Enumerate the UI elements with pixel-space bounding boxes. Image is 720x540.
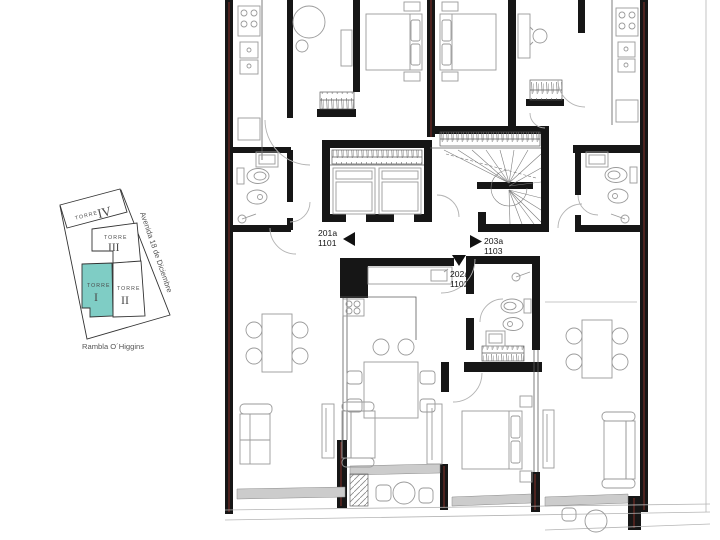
bar-stool-icon xyxy=(373,339,389,355)
nightstand-icon xyxy=(520,396,532,407)
bedroom-2 xyxy=(440,2,496,81)
bath-202-door-arc xyxy=(480,299,503,322)
unit-203a-arrow-right-icon xyxy=(470,235,482,248)
chair-icon xyxy=(246,348,262,364)
unit-label-201a: 201a 1101 xyxy=(318,228,355,248)
svg-text:II: II xyxy=(121,293,129,307)
shower-icon xyxy=(238,214,256,223)
svg-text:202a: 202a xyxy=(450,269,469,279)
bathroom-left xyxy=(237,152,278,223)
elevator-icon xyxy=(379,168,421,214)
planter-icon xyxy=(350,474,368,506)
desk-chair-icon xyxy=(533,29,547,43)
bed-icon xyxy=(440,14,496,70)
unit203-hall-wall xyxy=(578,0,585,33)
bed-icon xyxy=(366,14,422,70)
dining-unit201 xyxy=(246,314,308,372)
nightstand-icon xyxy=(404,72,420,81)
cabinet-icon xyxy=(238,118,260,140)
svg-text:TORRE: TORRE xyxy=(117,286,141,292)
toilet-icon xyxy=(237,168,269,184)
svg-text:1103: 1103 xyxy=(484,246,503,256)
balcony-table-icon xyxy=(585,510,607,532)
floor-plan-drawing: TORRE IV TORRE III TORRE I TORRE II Aven… xyxy=(0,0,720,540)
floor-plan-page: TORRE IV TORRE III TORRE I TORRE II Aven… xyxy=(0,0,720,540)
desk-icon xyxy=(518,14,530,58)
unit201-bedroom-wall xyxy=(353,0,360,92)
round-table-icon xyxy=(293,6,325,38)
elevator-icon xyxy=(333,168,375,214)
chair-icon xyxy=(292,348,308,364)
studio-unit201 xyxy=(293,6,352,66)
svg-text:TORRE: TORRE xyxy=(104,235,128,241)
cabinet-icon xyxy=(616,100,638,122)
svg-text:1101: 1101 xyxy=(318,238,337,248)
svg-text:201a: 201a xyxy=(318,228,337,238)
closets xyxy=(320,80,562,361)
walls xyxy=(225,0,648,530)
kitchen-unit203 xyxy=(616,8,638,122)
shower-icon xyxy=(512,272,530,281)
svg-text:1102: 1102 xyxy=(450,279,469,289)
sofa-unit203 xyxy=(543,410,635,488)
unit202-bedroom-balcony-door xyxy=(452,494,531,506)
dining-table-icon xyxy=(364,362,418,418)
desk-chair-icon xyxy=(296,40,308,52)
chair-icon xyxy=(347,371,362,384)
bedroom-202-door-arc xyxy=(453,373,482,402)
unit201-balcony-door xyxy=(237,487,345,499)
bedroom-1 xyxy=(366,2,422,81)
nightstand-icon xyxy=(404,2,420,11)
unit203-balcony-door xyxy=(545,494,628,506)
bathroom-right xyxy=(586,152,637,223)
stair-handrail xyxy=(477,182,533,189)
stair-door-arc xyxy=(437,195,459,217)
chair-icon xyxy=(347,399,362,412)
bathroom-202 xyxy=(486,272,531,346)
bath-right-door-arc xyxy=(578,195,598,215)
kitchen-partition-wall xyxy=(287,0,293,118)
tower-i-floor-plan: 201a 1101 203a 1103 202a 1102 xyxy=(225,0,710,532)
stove-icon xyxy=(343,299,364,316)
dining-unit202 xyxy=(347,362,435,418)
bedroom-unit202 xyxy=(462,396,532,482)
dining-unit203 xyxy=(566,320,628,378)
nightstand-icon xyxy=(520,471,532,482)
closet-hangers-icon xyxy=(320,80,562,361)
sliding-glass-doors xyxy=(237,464,628,506)
svg-text:TORRE: TORRE xyxy=(87,283,111,289)
unit-label-203a: 203a 1103 xyxy=(470,235,503,256)
sofa-unit201 xyxy=(240,404,334,464)
unit203-bedroom-wall xyxy=(508,0,516,133)
sink-icon xyxy=(240,42,258,74)
svg-text:III: III xyxy=(108,242,120,254)
chair-icon xyxy=(292,322,308,338)
stove-icon xyxy=(238,6,260,36)
street-label-rambla: Rambla O´Higgins xyxy=(82,342,144,351)
dining-table-icon xyxy=(262,314,292,372)
sink-icon xyxy=(431,269,448,281)
elevators xyxy=(333,168,421,214)
bidet-icon xyxy=(608,189,628,203)
balcony-chair-icon xyxy=(376,485,391,501)
chair-icon xyxy=(612,354,628,370)
study-unit203 xyxy=(518,14,547,58)
chair-icon xyxy=(246,322,262,338)
chair-icon xyxy=(566,328,582,344)
bed-icon xyxy=(462,411,522,469)
unit-202a-arrow-down-icon xyxy=(452,255,466,266)
sofa-icon xyxy=(602,412,635,421)
dining-table-icon xyxy=(582,320,612,378)
sideboard-icon xyxy=(543,410,554,468)
toilet-icon xyxy=(605,167,637,183)
balcony-unit202 xyxy=(350,474,433,506)
chair-icon xyxy=(420,399,435,412)
svg-text:203a: 203a xyxy=(484,236,503,246)
toilet-icon xyxy=(501,299,531,313)
desk-icon xyxy=(341,30,352,66)
counter xyxy=(368,267,452,284)
chair-icon xyxy=(420,371,435,384)
nightstand-icon xyxy=(442,2,458,11)
bar-stool-icon xyxy=(398,339,414,355)
kitchen-unit201 xyxy=(238,6,260,140)
bidet-icon xyxy=(247,190,267,204)
chair-icon xyxy=(566,354,582,370)
unit-201a-arrow-left-icon xyxy=(343,232,355,246)
chair-icon xyxy=(612,328,628,344)
stove-icon xyxy=(616,8,638,36)
svg-text:I: I xyxy=(94,290,98,304)
bookcase-icon xyxy=(427,404,442,464)
counter-edge xyxy=(340,297,416,340)
sideboard-icon xyxy=(322,404,334,458)
balcony-table-icon xyxy=(393,482,415,504)
sink-icon xyxy=(618,42,635,72)
shower-icon xyxy=(611,214,629,223)
balcony-chair-icon xyxy=(419,488,433,503)
unit202-living-balcony-door xyxy=(350,464,440,475)
sofa-icon xyxy=(240,404,272,414)
bidet-icon xyxy=(503,318,523,331)
nightstand-icon xyxy=(442,72,458,81)
site-key-map: TORRE IV TORRE III TORRE I TORRE II Aven… xyxy=(60,189,174,351)
